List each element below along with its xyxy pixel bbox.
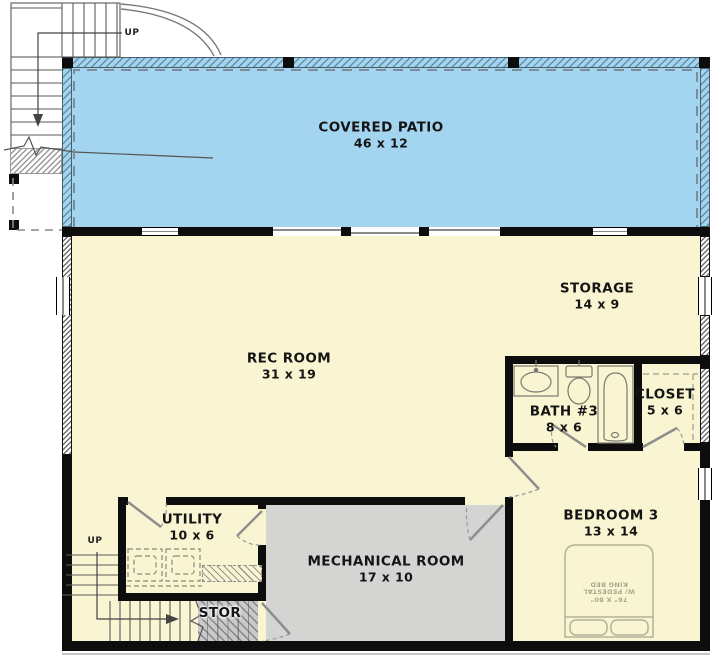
bed-note: W/ PEDESTAL <box>574 588 644 596</box>
room-label-utility: UTILITY 10 x 6 <box>162 512 223 543</box>
door-mullion-post <box>341 227 351 236</box>
window <box>698 277 712 315</box>
bed-annotation: 76" X 80" W/ PEDESTAL KING BED <box>574 580 644 603</box>
bed-type: KING BED <box>574 580 644 588</box>
wall-segment <box>505 497 513 641</box>
room-dims: 14 x 9 <box>560 297 634 312</box>
room-name: STOR <box>199 605 241 621</box>
window <box>142 227 178 236</box>
room-dims: 31 x 19 <box>247 367 331 382</box>
wall-segment <box>62 641 710 651</box>
wall-segment <box>500 227 593 236</box>
wall-segment <box>588 443 643 451</box>
room-label-bedroom: BEDROOM 3 13 x 14 <box>563 508 658 539</box>
room-dims: 5 x 6 <box>635 403 695 418</box>
patio-edge-left <box>62 68 72 227</box>
room-dims: 8 x 6 <box>530 420 598 435</box>
deck-edge-hatch <box>10 148 62 174</box>
floor-plan: COVERED PATIO 46 x 12 REC ROOM 31 x 19 S… <box>0 0 725 663</box>
patio-edge-right <box>700 68 710 227</box>
room-dims: 10 x 6 <box>162 528 223 543</box>
wall-segment <box>505 443 513 457</box>
room-name: BATH #3 <box>530 404 598 420</box>
stair-up-label-bottom: UP <box>88 536 103 546</box>
wall-segment <box>62 455 72 651</box>
wall-segment <box>118 593 266 601</box>
sliding-glass-door <box>273 227 500 236</box>
wall-hatched <box>62 236 72 455</box>
room-name: BEDROOM 3 <box>563 508 658 524</box>
wall-segment <box>166 497 465 505</box>
room-name: MECHANICAL ROOM <box>307 554 464 570</box>
room-dims: 13 x 14 <box>563 524 658 539</box>
stair-up-label-top: UP <box>125 28 140 38</box>
wall-hatched <box>700 315 710 356</box>
room-name: CLOSET <box>635 387 695 403</box>
wall-segment <box>62 227 142 236</box>
deck-post <box>9 220 19 230</box>
wall-segment <box>118 497 126 601</box>
wall-shadow-line <box>62 653 710 655</box>
window <box>593 227 627 236</box>
deck-dashed-edge <box>13 178 62 230</box>
wall-segment <box>684 443 710 451</box>
patio-post <box>283 57 294 68</box>
deck-post <box>9 174 19 184</box>
patio-post <box>62 57 73 68</box>
wall-hatched <box>700 236 710 277</box>
room-label-patio: COVERED PATIO 46 x 12 <box>318 120 443 151</box>
wall-segment <box>700 500 710 651</box>
room-dims: 46 x 12 <box>318 136 443 151</box>
room-label-rec: REC ROOM 31 x 19 <box>247 351 331 382</box>
room-name: STORAGE <box>560 281 634 297</box>
window <box>56 277 70 315</box>
room-label-stor: STOR <box>199 605 241 621</box>
room-label-closet: CLOSET 5 x 6 <box>635 387 695 418</box>
window <box>698 468 712 500</box>
wall-segment <box>505 356 710 364</box>
wall-segment <box>627 227 710 236</box>
room-label-storage: STORAGE 14 x 9 <box>560 281 634 312</box>
room-dims: 17 x 10 <box>307 570 464 585</box>
room-name: UTILITY <box>162 512 223 528</box>
room-label-bath: BATH #3 8 x 6 <box>530 404 598 435</box>
wall-segment <box>178 227 273 236</box>
room-name: COVERED PATIO <box>318 120 443 136</box>
wall-hatched <box>700 368 710 443</box>
patio-post <box>699 57 710 68</box>
wall-segment <box>505 364 513 443</box>
utility-counter <box>202 565 262 582</box>
patio-post <box>508 57 519 68</box>
bed-size: 76" X 80" <box>574 595 644 603</box>
wall-segment <box>258 497 266 509</box>
room-name: REC ROOM <box>247 351 331 367</box>
room-label-mechanical: MECHANICAL ROOM 17 x 10 <box>307 554 464 585</box>
door-mullion-post <box>419 227 429 236</box>
patio-edge-top <box>62 57 710 68</box>
